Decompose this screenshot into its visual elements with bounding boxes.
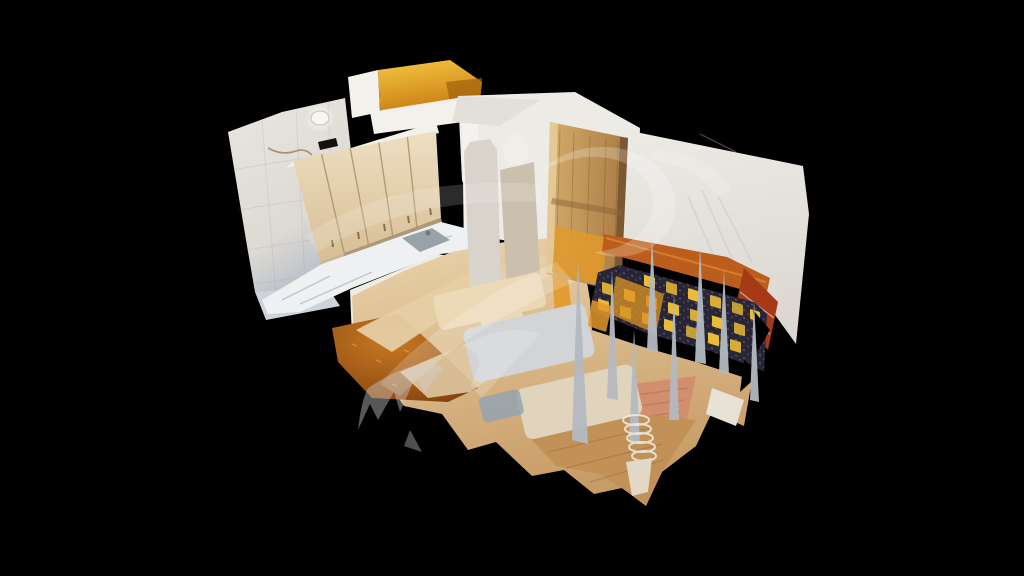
round-column	[503, 134, 529, 166]
dollhouse-render	[0, 0, 1024, 576]
faucet	[426, 231, 431, 236]
3d-viewport[interactable]	[0, 0, 1024, 576]
ceiling-light	[311, 111, 329, 125]
